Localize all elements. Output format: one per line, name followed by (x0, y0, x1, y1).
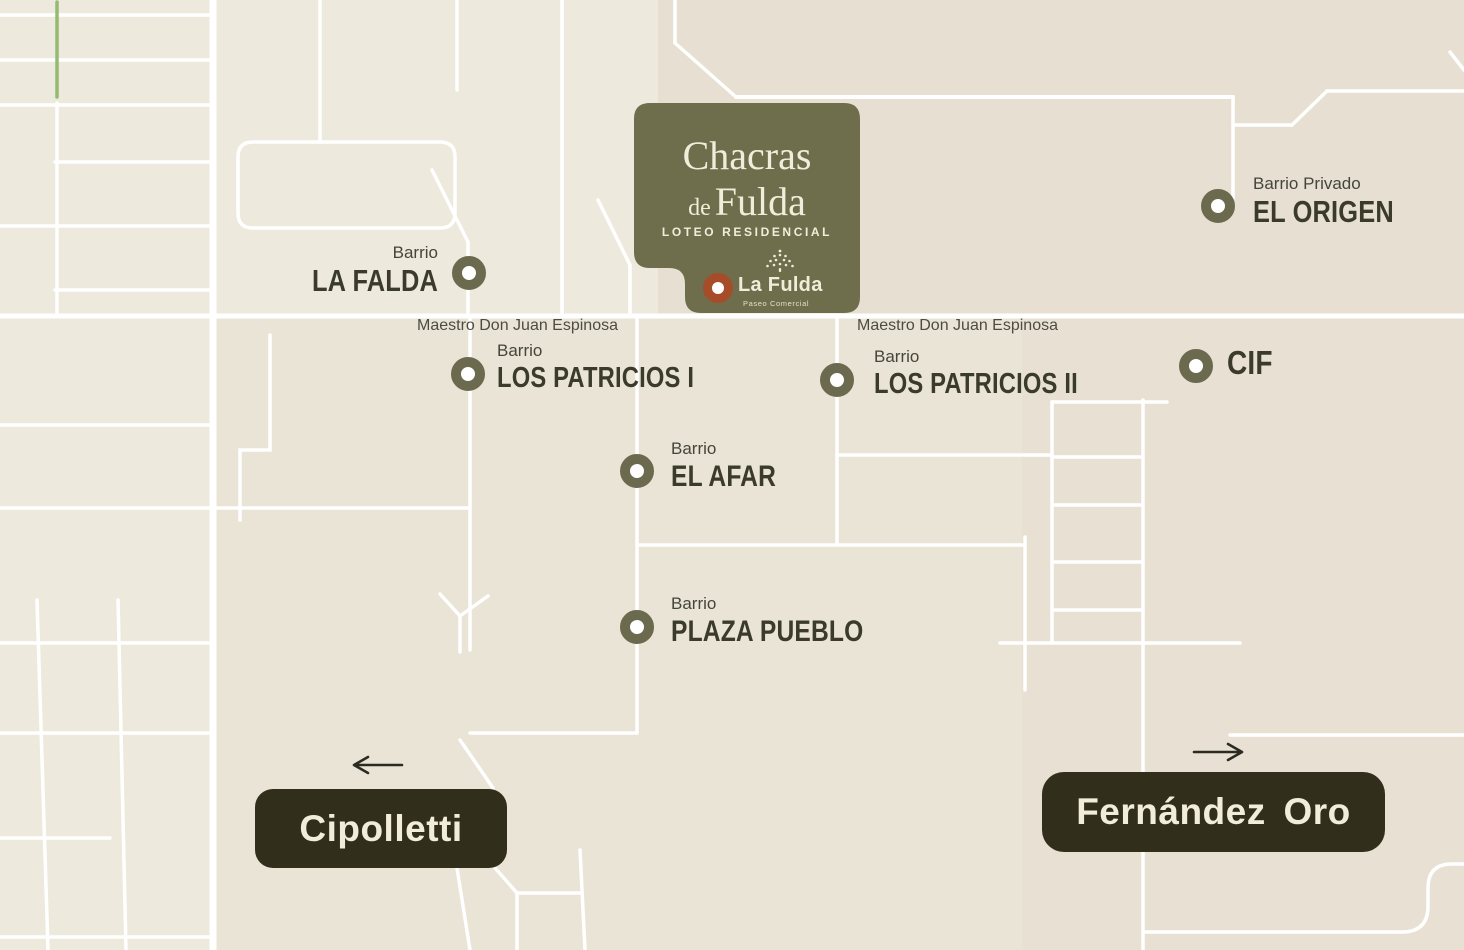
card-subtitle: LOTEO RESIDENCIAL (634, 225, 860, 239)
location-prefix: Barrio (874, 347, 1123, 367)
location-los-patricios-1: Barrio LOS PATRICIOS I (497, 341, 737, 393)
marker-los-patricios-1 (451, 357, 485, 391)
location-prefix: Barrio (671, 439, 799, 459)
location-name: EL ORIGEN (1253, 196, 1394, 229)
left-arrow-icon (346, 754, 406, 776)
location-el-origen: Barrio Privado EL ORIGEN (1253, 174, 1425, 228)
block-patch (1022, 316, 1464, 950)
location-name: CIF (1227, 346, 1273, 381)
card-title-line1: Chacras (634, 136, 860, 176)
destination-fernandez-oro: Fernández Oro (1042, 772, 1385, 852)
destination-label: Cipolletti (299, 808, 462, 850)
location-prefix: Barrio (671, 594, 906, 614)
location-los-patricios-2: Barrio LOS PATRICIOS II (874, 347, 1123, 399)
location-name: LOS PATRICIOS II (874, 369, 1078, 399)
card-title-fulda: Fulda (715, 179, 806, 224)
location-la-falda: Barrio LA FALDA (240, 243, 438, 297)
card-title-line2: de Fulda (634, 182, 860, 222)
street-label-left: Maestro Don Juan Espinosa (417, 317, 618, 335)
marker-el-origen (1201, 189, 1235, 223)
title-card: Chacras de Fulda LOTEO RESIDENCIAL La Fu… (634, 103, 860, 313)
location-name: LOS PATRICIOS I (497, 363, 694, 393)
location-prefix: Barrio Privado (1253, 174, 1425, 194)
map-canvas: Maestro Don Juan Espinosa Maestro Don Ju… (0, 0, 1464, 950)
marker-plaza-pueblo (620, 610, 654, 644)
marker-los-patricios-2 (820, 363, 854, 397)
brand-marker-icon (703, 273, 733, 303)
brand-name: La Fulda (738, 274, 823, 297)
location-name: LA FALDA (276, 265, 438, 298)
marker-la-falda (452, 256, 486, 290)
location-name: PLAZA PUEBLO (671, 616, 863, 648)
block-patch (0, 316, 216, 950)
tree-icon (762, 249, 798, 273)
location-prefix: Barrio (497, 341, 737, 361)
brand-tagline: Paseo Comercial (743, 299, 809, 308)
location-prefix: Barrio (240, 243, 438, 263)
street-label-right: Maestro Don Juan Espinosa (857, 317, 1058, 335)
marker-el-afar (620, 454, 654, 488)
destination-cipolletti: Cipolletti (255, 789, 507, 868)
marker-cif (1179, 349, 1213, 383)
location-name: EL AFAR (671, 461, 776, 493)
right-arrow-icon (1190, 741, 1250, 763)
destination-label: Fernández Oro (1076, 791, 1351, 833)
location-cif: CIF (1227, 344, 1281, 381)
location-el-afar: Barrio EL AFAR (671, 439, 799, 492)
location-plaza-pueblo: Barrio PLAZA PUEBLO (671, 594, 906, 647)
card-title-de: de (688, 195, 711, 221)
